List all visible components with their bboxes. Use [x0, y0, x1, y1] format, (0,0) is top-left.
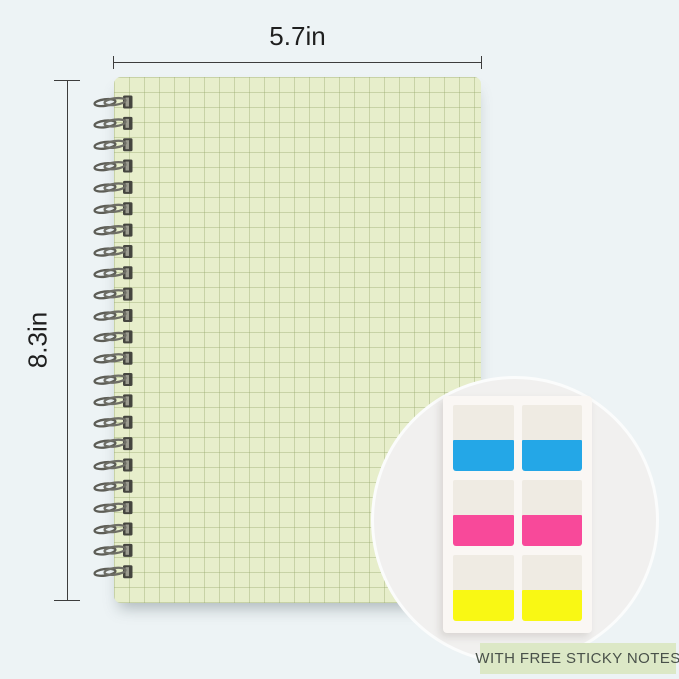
sticky-tab-clear-part — [522, 405, 583, 440]
height-dimension-label: 8.3in — [23, 312, 54, 368]
sticky-tab-row-pink — [453, 480, 582, 546]
sticky-tab-color-part — [522, 440, 583, 471]
height-dimension-tick-bottom — [54, 600, 80, 601]
sticky-tab-clear-part — [453, 480, 514, 515]
sticky-tab-clear-part — [522, 480, 583, 515]
sticky-tab-blue — [522, 405, 583, 471]
binding-coil — [94, 245, 132, 258]
binding-coil — [94, 266, 132, 279]
binding-coil — [94, 480, 132, 493]
sticky-tab-pink — [522, 480, 583, 546]
binding-coil — [94, 437, 132, 450]
sticky-tab-clear-part — [522, 555, 583, 590]
binding-coil — [94, 288, 132, 301]
binding-coil — [94, 565, 132, 578]
binding-coil — [94, 181, 132, 194]
sticky-notes-badge: WITH FREE STICKY NOTES — [480, 643, 676, 674]
binding-coil — [94, 352, 132, 365]
binding-coil — [94, 96, 132, 109]
sticky-tab-clear-part — [453, 555, 514, 590]
binding-coil — [94, 373, 132, 386]
sticky-tab-color-part — [522, 590, 583, 621]
binding-coil — [94, 309, 132, 322]
binding-coil — [94, 224, 132, 237]
binding-coil — [94, 330, 132, 343]
sticky-notes-badge-label: WITH FREE STICKY NOTES — [475, 650, 679, 667]
binding-coil — [94, 523, 132, 536]
sticky-tab-clear-part — [453, 405, 514, 440]
width-dimension-label: 5.7in — [113, 21, 482, 51]
binding-coil — [94, 117, 132, 130]
binding-coil — [94, 458, 132, 471]
product-image: 5.7in 8.3in WITH FREE STICKY NOTE — [0, 0, 679, 679]
height-dimension-line — [67, 80, 68, 600]
sticky-tab-color-part — [522, 515, 583, 546]
sticky-tab-yellow — [522, 555, 583, 621]
binding-coil — [94, 544, 132, 557]
sticky-tab-blue — [453, 405, 514, 471]
binding-coil — [94, 202, 132, 215]
binding-coil — [94, 160, 132, 173]
binding-coil — [94, 138, 132, 151]
spiral-binding — [92, 94, 142, 589]
sticky-tab-pink — [453, 480, 514, 546]
sticky-tab-yellow — [453, 555, 514, 621]
width-dimension-line — [113, 62, 482, 63]
sticky-tab-row-yellow — [453, 555, 582, 621]
height-dimension-tick-top — [54, 80, 80, 81]
spiral-binding-svg — [94, 96, 132, 579]
binding-coil — [94, 501, 132, 514]
sticky-tab-color-part — [453, 515, 514, 546]
width-dimension-tick-right — [481, 56, 482, 69]
sticky-tab-color-part — [453, 590, 514, 621]
binding-coil — [94, 416, 132, 429]
sticky-tab-row-blue — [453, 405, 582, 471]
sticky-tab-color-part — [453, 440, 514, 471]
width-dimension-tick-left — [113, 56, 114, 69]
sticky-notes-sheet — [443, 396, 592, 633]
binding-coil — [94, 394, 132, 407]
